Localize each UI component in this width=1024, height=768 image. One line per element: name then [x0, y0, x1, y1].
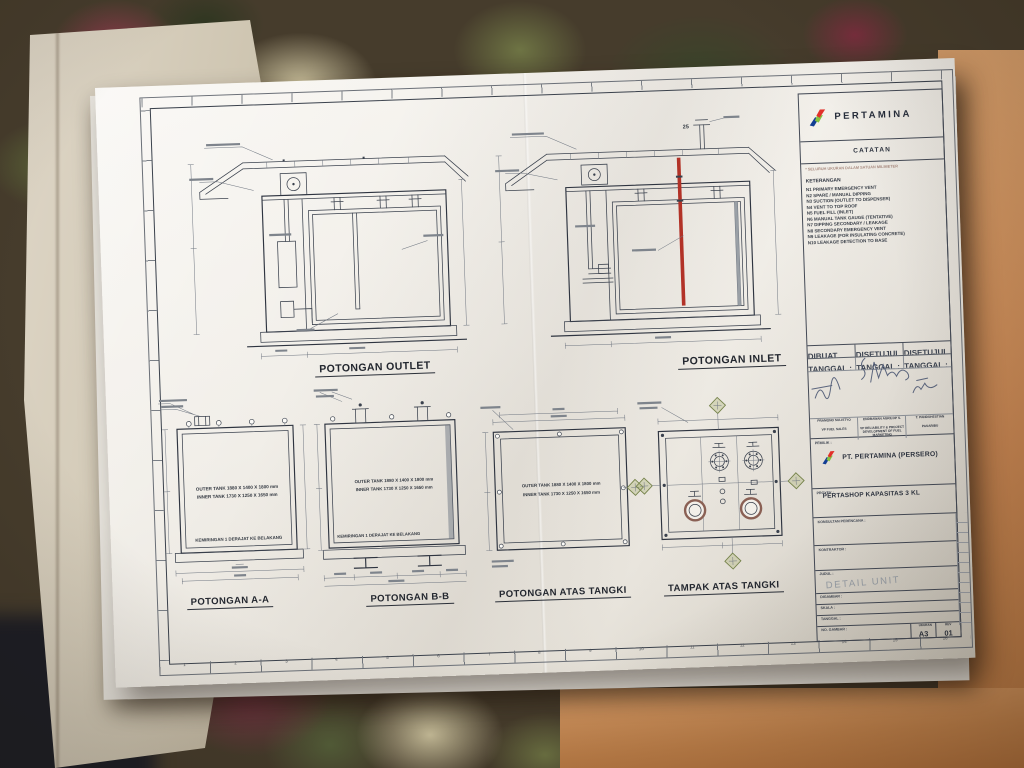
section-marker-left	[636, 478, 661, 495]
judul-label: JUDUL :	[819, 572, 833, 577]
cover-fold-edge	[56, 30, 59, 768]
canopy-roof	[505, 146, 776, 190]
approval-block: DIBUAT DISETUJUI DISETUJUI TANGGAL : TAN…	[807, 341, 953, 439]
tank-section	[308, 194, 444, 325]
section-marker-right	[780, 472, 805, 489]
inner-tank-dim: INNER TANK 1730 X 1250 X 1650 mm	[523, 490, 600, 498]
ukuran-rev-cells: UKURAN A3 REV 01	[910, 622, 960, 638]
signature-space	[808, 367, 953, 419]
dimension-lines	[637, 397, 782, 551]
digambar-label: DIGAMBAR :	[820, 594, 842, 599]
outer-tank-dim: OUTER TANK 1880 X 1400 X 1800 mm	[354, 476, 433, 484]
kontraktor-label: KONTRAKTOR :	[818, 547, 846, 552]
potongan-aa-drawing: OUTER TANK 1880 X 1400 X 1800 mm INNER T…	[154, 391, 321, 596]
pemilik-row: PEMILIK : PT. PERTAMINA (PERSERO)	[811, 434, 956, 489]
vent-pipe: 25	[682, 116, 740, 150]
inner-tank-dim: INNER TANK 1730 X 1250 X 1650 mm	[197, 492, 278, 500]
tanggal-label: TANGGAL :	[821, 616, 841, 621]
pertamina-logo-small	[821, 450, 837, 465]
base-skid	[247, 325, 467, 347]
keterangan-box: * SELURUH UKURAN DALAM SATUAN MILIMETER …	[801, 159, 950, 346]
grid-number: 3	[272, 658, 300, 666]
approval-header: DIBUAT	[808, 351, 838, 358]
konsultan-label: KONSULTAN PERENCANA :	[818, 518, 866, 524]
container-shell	[262, 190, 451, 332]
tank-plan	[658, 427, 782, 539]
signer-role: PASARIBU	[906, 423, 953, 428]
brand-row: PERTAMINA	[799, 89, 944, 142]
potongan-atas-drawing: OUTER TANK 1880 X 1400 X 1800 mm INNER T…	[478, 399, 652, 585]
potongan-inlet-drawing: 25	[489, 112, 792, 362]
company-name: PT. PERTAMINA (PERSERO)	[842, 450, 938, 460]
tampak-atas-drawing	[627, 388, 812, 590]
grid-number: 2	[221, 660, 249, 668]
signer-name: ENDRAWAN AGRILOP S.	[858, 416, 905, 421]
callout-leaders	[158, 399, 201, 418]
vent-size-label: 25	[683, 124, 689, 130]
section-marker-bottom	[724, 537, 741, 570]
table-surface-bottom	[560, 688, 1024, 768]
signer-name: PRAMONO SULISTYO	[810, 418, 857, 423]
dimension-lines	[188, 155, 471, 362]
fan-unit	[581, 164, 608, 185]
keterangan-title: KETERANGAN	[806, 175, 892, 184]
slope-note: KEMIRINGAN 1 DERAJAT KE BELAKANG	[195, 535, 283, 543]
fan-unit	[280, 173, 307, 196]
pemilik-label: PEMILIK :	[815, 441, 832, 446]
inner-tank-dim: INNER TANK 1730 X 1250 X 1650 mm	[356, 484, 433, 492]
potongan-bb-drawing: OUTER TANK 1880 X 1400 X 1800 mm INNER T…	[312, 383, 477, 594]
ukuran-cell: UKURAN A3	[910, 623, 935, 638]
dimension-lines	[314, 419, 467, 586]
ukuran-label: UKURAN	[919, 623, 928, 624]
catatan-title: CATATAN	[853, 146, 891, 154]
grid-number: 6	[424, 653, 452, 661]
gauge-pipe	[734, 202, 741, 306]
judul-handwritten: DETAIL UNIT	[825, 575, 900, 592]
grid-number: 13	[779, 640, 807, 648]
proyek-label: PROYEK :	[817, 490, 835, 495]
canopy-roof	[199, 153, 472, 199]
callout-leaders	[314, 388, 352, 402]
grid-number: 12	[728, 642, 756, 650]
rev-value: 01	[936, 628, 960, 638]
brand-name: PERTAMINA	[834, 109, 912, 123]
base-plate	[323, 545, 466, 569]
no-gambar-label: NO. GAMBAR :	[821, 627, 847, 632]
inlet-piping	[580, 190, 613, 283]
grid-number: 4	[323, 656, 351, 664]
base-skid	[550, 315, 770, 337]
grid-number: 8	[526, 649, 554, 657]
flange-vent-left	[708, 443, 731, 473]
top-fittings	[330, 400, 451, 424]
grid-number: 1	[171, 662, 199, 670]
manhole-right	[740, 489, 761, 519]
rev-label: REV	[944, 622, 953, 623]
rev-cell: REV 01	[935, 622, 960, 637]
grid-number: 11	[678, 644, 706, 652]
callout-leaders	[188, 136, 446, 335]
flange-vent-right	[742, 442, 765, 472]
signer-name: T. PANDUHESTIAN	[906, 414, 953, 419]
slope-note: KEMIRINGAN 1 DERAJAT KE BELAKANG	[337, 531, 420, 539]
ukuran-value: A3	[911, 629, 935, 639]
potongan-outlet-drawing	[182, 127, 475, 369]
grid-number: 5	[373, 655, 401, 663]
pertamina-logo	[808, 108, 829, 127]
manhole-left	[684, 491, 705, 521]
tank-plan	[493, 428, 629, 551]
outer-tank-dim: OUTER TANK 1880 X 1400 X 1800 mm	[196, 484, 279, 492]
dispenser-unit	[276, 199, 312, 324]
units-note: * SELURUH UKURAN DALAM SATUAN MILIMETER	[805, 165, 872, 172]
callout-leaders	[494, 128, 684, 257]
title-block: PERTAMINA CATATAN * SELURUH UKURAN DALAM…	[798, 88, 962, 642]
tank-walls	[325, 420, 459, 548]
owner-line: PT. PERTAMINA (PERSERO)	[811, 434, 955, 465]
outer-tank-dim: OUTER TANK 1880 X 1400 X 1800 mm	[522, 481, 601, 489]
grid-number: 7	[475, 651, 503, 659]
section-marker-top	[709, 397, 726, 430]
photo-scene: 1 2 3 4 5 6 7 8 9 10 11 12 13 14 15 16	[0, 0, 1024, 768]
grid-number: 10	[627, 646, 655, 654]
keterangan-list: N1 PRIMARY EMERGENCY VENT N2 SPARE / MAN…	[806, 182, 946, 246]
grid-number: 9	[576, 648, 604, 656]
drawing-sheet: 1 2 3 4 5 6 7 8 9 10 11 12 13 14 15 16	[95, 58, 975, 688]
skala-label: SKALA :	[821, 605, 836, 610]
signer-role: VP FUEL SALES	[810, 427, 857, 432]
fill-pipe-red	[675, 158, 687, 306]
